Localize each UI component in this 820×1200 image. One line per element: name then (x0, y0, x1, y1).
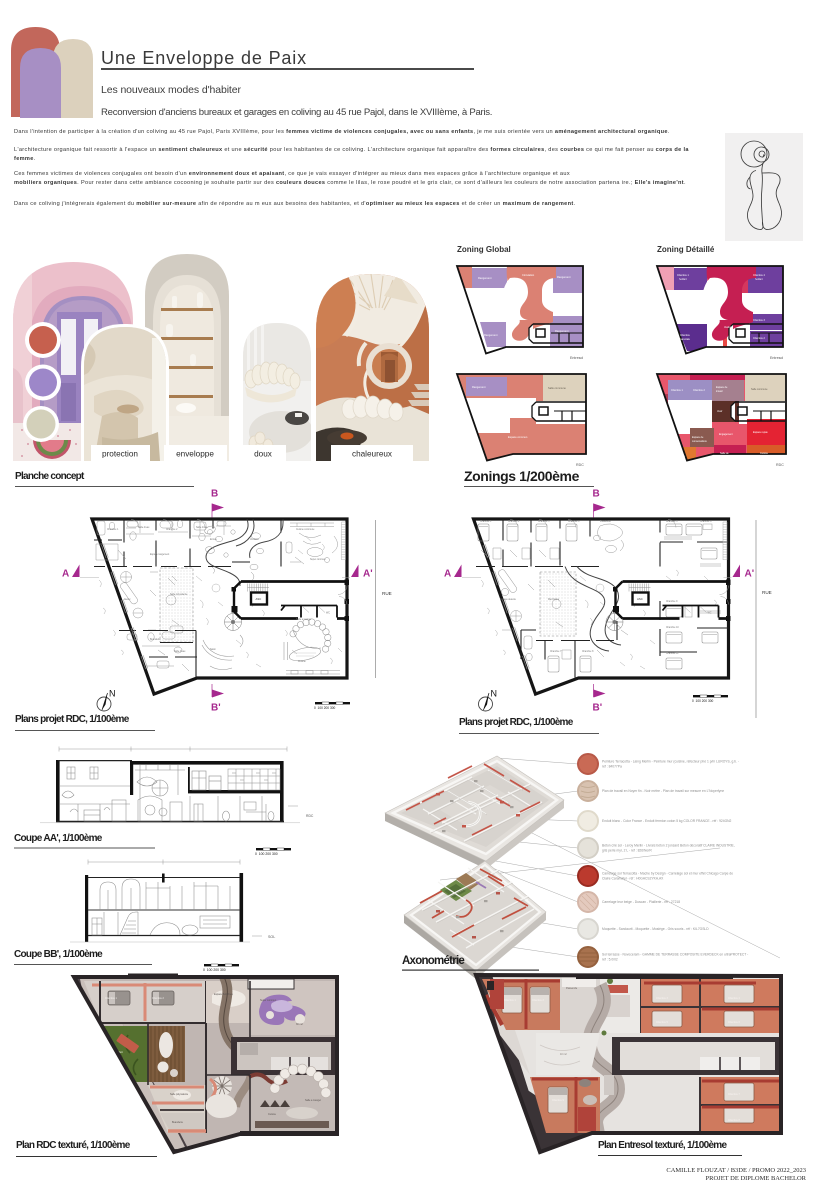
svg-text:Chambre: Chambre (680, 334, 691, 337)
svg-text:Chambre 2: Chambre 2 (753, 337, 765, 340)
svg-text:Salle polyvalente: Salle polyvalente (170, 593, 188, 596)
svg-text:doux: doux (254, 450, 272, 459)
svg-text:A: A (62, 569, 69, 580)
svg-text:parentale: parentale (680, 338, 691, 341)
svg-text:Espace repas: Espace repas (753, 431, 768, 434)
svg-text:N: N (109, 689, 116, 699)
svg-text:Chambre 1: Chambre 1 (480, 520, 492, 523)
svg-text:Buanderie: Buanderie (674, 455, 686, 458)
svg-text:Salle a manger: Salle a manger (305, 1099, 321, 1102)
svg-text:Salon: Salon (210, 649, 217, 651)
svg-text:enveloppe: enveloppe (176, 450, 214, 459)
svg-text:Chambre 7: Chambre 7 (728, 1093, 740, 1096)
svg-text:Chambre 2: Chambre 2 (166, 528, 178, 531)
svg-text:Rangement: Rangement (557, 275, 571, 279)
svg-text:Moquette - Sarclaurit - Moquet: Moquette - Sarclaurit - Moquette - Mosiè… (602, 927, 709, 931)
svg-text:Chambre 2: Chambre 2 (532, 999, 544, 1002)
svg-text:Rangement: Rangement (472, 385, 486, 389)
svg-text:Salle d'eau: Salle d'eau (174, 651, 186, 653)
svg-text:Chambre 4: Chambre 4 (753, 274, 765, 277)
svg-text:Super commun: Super commun (310, 558, 326, 561)
svg-text:Carrelage leur beige - Duscan: Carrelage leur beige - Duscan - Plailler… (602, 900, 680, 904)
svg-text:Chambre 3: Chambre 3 (753, 319, 765, 322)
svg-text:RDC: RDC (576, 463, 584, 467)
svg-text:Cuisine commune: Cuisine commune (296, 529, 315, 531)
svg-text:Espace Bell-Bnes: Espace Bell-Bnes (214, 993, 234, 996)
svg-text:Chambre 1: Chambre 1 (504, 999, 516, 1002)
svg-text:Peinture Terracotta - Laing Me: Peinture Terracotta - Laing Merlin - Pei… (602, 760, 739, 764)
svg-text:Chambre 5: Chambre 5 (656, 1021, 668, 1024)
svg-text:Salle d'eau: Salle d'eau (196, 527, 208, 529)
svg-text:Passerelle: Passerelle (566, 987, 578, 990)
svg-text:Salle commune: Salle commune (751, 388, 768, 391)
svg-text:Chambre 10: Chambre 10 (666, 626, 679, 629)
svg-text:WC: WC (326, 612, 330, 615)
svg-text:Chambre 11: Chambre 11 (666, 652, 679, 655)
svg-text:Chambre 4: Chambre 4 (728, 997, 740, 1000)
svg-text:Chambre 9: Chambre 9 (666, 600, 678, 603)
svg-text:Chambre 1: Chambre 1 (105, 997, 117, 1000)
svg-text:Chambre 2: Chambre 2 (693, 389, 705, 392)
svg-text:Enduit blanc - Color France -: Enduit blanc - Color France - Enduit fer… (602, 819, 732, 823)
svg-text:Entree: Entree (210, 538, 217, 541)
svg-text:Chambre 1: Chambre 1 (107, 528, 119, 531)
svg-text:gris perle myr, 2 L - réf : 82: gris perle myr, 2 L - réf : 826/NorR (602, 849, 652, 853)
svg-text:A: A (444, 569, 451, 580)
svg-text:SOL: SOL (268, 935, 275, 939)
svg-text:Chambre 1: Chambre 1 (671, 389, 683, 392)
svg-text:ASC: ASC (637, 597, 643, 601)
svg-text:Salle de: Salle de (720, 452, 729, 455)
svg-text:Rangement: Rangement (478, 276, 492, 280)
svg-text:B': B' (211, 703, 221, 714)
svg-text:Salle d'eau: Salle d'eau (138, 527, 150, 529)
svg-text:l'enfant: l'enfant (679, 278, 687, 281)
svg-text:Coupe AA', 1/100ème: Coupe AA', 1/100ème (14, 833, 103, 844)
svg-text:Espace commun: Espace commun (508, 435, 528, 439)
svg-text:conversations: conversations (692, 440, 708, 443)
svg-text:Chambre 3: Chambre 3 (656, 997, 668, 1000)
svg-text:Béton ciré sol - Leroy Merlin: Béton ciré sol - Leroy Merlin - Livrais … (602, 844, 735, 848)
svg-text:B': B' (593, 703, 603, 714)
svg-text:Rangement: Rangement (555, 329, 569, 333)
svg-text:Chambre 9: Chambre 9 (552, 1099, 564, 1102)
svg-text:B: B (593, 489, 600, 500)
svg-text:Passerelle: Passerelle (600, 520, 611, 523)
svg-text:Espace de: Espace de (692, 436, 704, 439)
svg-text:RDC: RDC (306, 814, 314, 818)
svg-text:Atelier: Atelier (124, 598, 131, 601)
svg-text:Circulation: Circulation (522, 273, 535, 277)
svg-text:30 m2: 30 m2 (296, 1023, 303, 1026)
svg-text:Chambre 7: Chambre 7 (550, 650, 562, 653)
svg-text:réf : 84077Pa: réf : 84077Pa (602, 765, 622, 769)
svg-text:Zoning Détaillé: Zoning Détaillé (657, 245, 715, 254)
svg-text:Carrelage sol Terracotta - Mac: Carrelage sol Terracotta - Mache by Desi… (602, 872, 733, 876)
svg-text:0 100 200 300: 0 100 200 300 (692, 699, 713, 703)
svg-text:Plan de travail en Noyer fin -: Plan de travail en Noyer fin - Noir mètr… (602, 789, 724, 793)
svg-text:Chambre 6: Chambre 6 (700, 520, 712, 523)
svg-text:Salle a manger: Salle a manger (296, 618, 312, 621)
svg-text:Entresol: Entresol (770, 356, 783, 360)
svg-text:A': A' (745, 569, 755, 580)
svg-text:naissance: naissance (720, 456, 731, 459)
svg-text:Vestr: Vestr (717, 410, 723, 413)
svg-text:protection: protection (102, 450, 138, 459)
svg-text:A': A' (363, 569, 373, 580)
svg-text:Espace de: Espace de (716, 386, 728, 389)
svg-text:WC: WC (708, 612, 712, 615)
svg-text:RUE: RUE (762, 590, 772, 595)
svg-text:Cuisine: Cuisine (298, 661, 306, 663)
svg-text:Cuisine: Cuisine (760, 452, 769, 455)
svg-text:Rangement: Rangement (484, 333, 498, 337)
svg-text:Vestiaire: Vestiaire (250, 538, 260, 541)
svg-text:Chambre 4: Chambre 4 (568, 520, 580, 523)
svg-text:Chambre 2: Chambre 2 (508, 520, 520, 523)
svg-text:Claire Caramatyl - réf : H0GAC: Claire Caramatyl - réf : H0GACS2YKA,AX (602, 877, 664, 881)
svg-text:Engagement: Engagement (719, 433, 733, 436)
svg-text:Buanderie: Buanderie (172, 1121, 184, 1124)
svg-text:l'enfant: l'enfant (755, 278, 763, 281)
svg-text:Espace rangement: Espace rangement (150, 553, 170, 556)
svg-text:0 100 200 300: 0 100 200 300 (255, 852, 278, 856)
svg-text:travail: travail (716, 390, 723, 393)
svg-text:Chambre 1: Chambre 1 (677, 274, 689, 277)
svg-text:Vestiaire: Vestiaire (724, 326, 734, 329)
svg-text:chaleureux: chaleureux (352, 450, 392, 459)
svg-text:Buanderie: Buanderie (150, 638, 161, 641)
svg-text:Cuisine: Cuisine (268, 1113, 277, 1116)
svg-text:40 m2: 40 m2 (560, 1053, 567, 1056)
svg-text:Salle polyvalente: Salle polyvalente (170, 1093, 189, 1096)
svg-text:Chambre 2: Chambre 2 (152, 997, 164, 1000)
svg-text:Chambre 5: Chambre 5 (666, 520, 678, 523)
svg-text:Chambre 3: Chambre 3 (538, 520, 550, 523)
svg-text:RUE: RUE (382, 591, 392, 596)
svg-text:Mezzanine: Mezzanine (548, 599, 560, 601)
svg-text:Salle commune: Salle commune (548, 386, 566, 390)
svg-text:Chambre 8: Chambre 8 (582, 650, 594, 653)
svg-text:N: N (491, 689, 498, 699)
svg-text:Chambre 6: Chambre 6 (728, 1021, 740, 1024)
svg-text:ASC: ASC (256, 597, 262, 601)
svg-text:Entresol: Entresol (570, 356, 583, 360)
svg-text:Espace detente: Espace detente (500, 598, 517, 601)
svg-text:Zoning Global: Zoning Global (457, 245, 511, 254)
svg-text:0 100 200 300: 0 100 200 300 (314, 706, 335, 710)
svg-text:Chambre 8: Chambre 8 (728, 1119, 740, 1122)
svg-text:RDC: RDC (776, 463, 784, 467)
svg-text:Super commun: Super commun (260, 999, 277, 1002)
svg-text:B: B (211, 489, 218, 500)
